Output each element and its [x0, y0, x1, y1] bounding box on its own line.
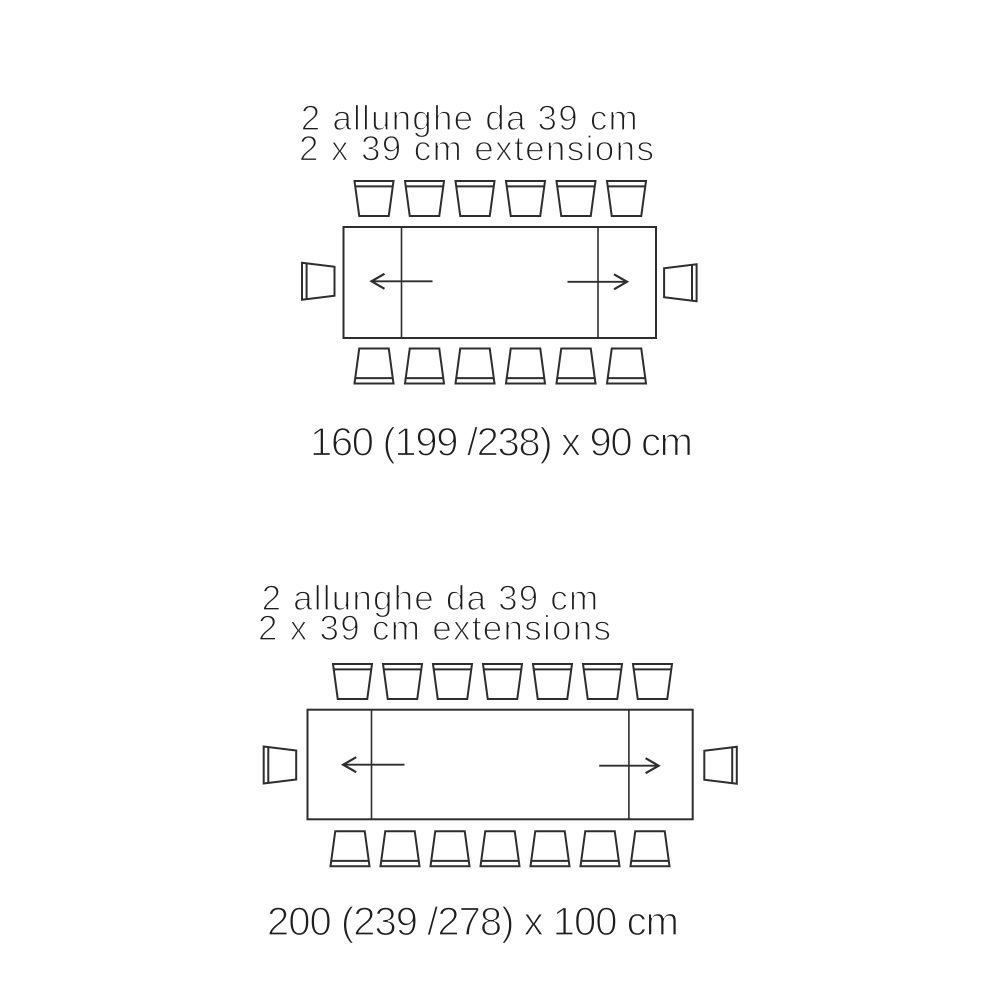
- svg-text:160 (199 /238) x 90 cm: 160 (199 /238) x 90 cm: [310, 420, 693, 464]
- svg-text:200 (239 /278) x 100 cm: 200 (239 /278) x 100 cm: [267, 900, 679, 944]
- svg-text:2 x 39 cm extensions: 2 x 39 cm extensions: [299, 130, 654, 169]
- svg-text:2 x 39 cm extensions: 2 x 39 cm extensions: [258, 609, 611, 648]
